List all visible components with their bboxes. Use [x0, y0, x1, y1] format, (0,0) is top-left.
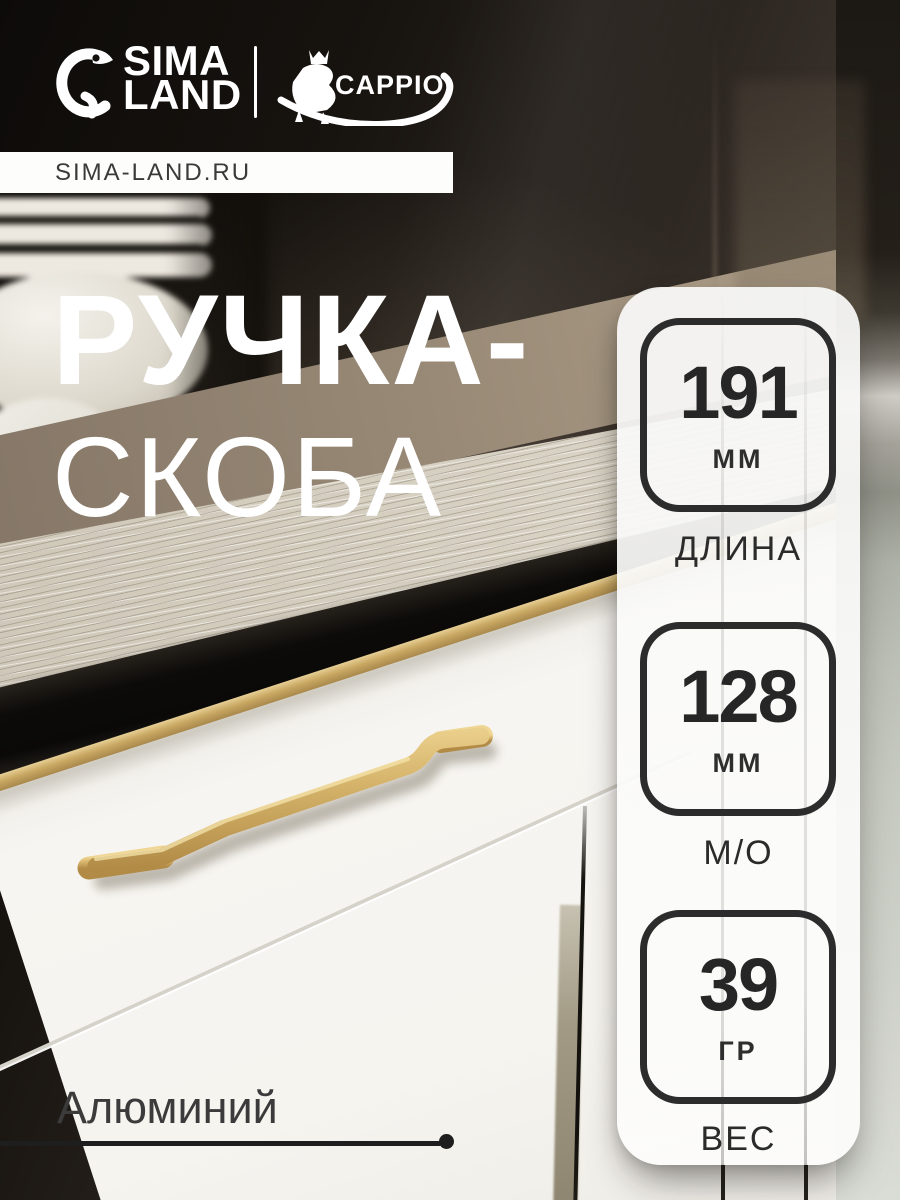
sima-land-logo: SIMA LAND — [123, 44, 242, 113]
spec-box-weight: 39 ГР — [640, 910, 836, 1104]
spec-unit-weight: ГР — [718, 1036, 757, 1067]
site-banner-text: SIMA-LAND.RU — [55, 159, 251, 187]
spec-unit-hole-spacing: ММ — [713, 748, 764, 779]
cappio-logo: CAPPIO — [269, 40, 469, 126]
brand-logos: SIMA LAND CAPPIO — [55, 40, 475, 126]
sima-land-dolphin-icon — [55, 44, 117, 122]
site-banner: SIMA-LAND.RU — [0, 152, 453, 193]
door-seam-line — [721, 1163, 725, 1200]
product-title-line2: СКОБА — [52, 421, 652, 534]
door-seam-line — [804, 1163, 808, 1200]
spec-value-hole-spacing: 128 — [679, 660, 796, 734]
spec-label-weight: ВЕС — [617, 1120, 860, 1159]
spec-label-length: ДЛИНА — [617, 530, 860, 569]
material-pointer-line — [0, 1141, 442, 1146]
crown-icon — [309, 50, 329, 64]
logo-divider — [254, 46, 257, 118]
cappio-logo-text: CAPPIO — [335, 70, 445, 101]
spec-value-length: 191 — [679, 356, 796, 430]
spec-label-hole-spacing: М/О — [617, 834, 860, 873]
spec-value-weight: 39 — [699, 948, 777, 1022]
material-label: Алюминий — [57, 1082, 278, 1134]
cabinet-seam — [713, 30, 717, 290]
cabinet-highlight — [735, 80, 865, 320]
spec-panel: 191 ММ ДЛИНА 128 ММ М/О 39 ГР ВЕС — [617, 287, 860, 1165]
gold-handle — [75, 705, 505, 900]
spec-box-hole-spacing: 128 ММ — [640, 622, 836, 816]
product-card: 191 ММ ДЛИНА 128 ММ М/О 39 ГР ВЕС SIMA L… — [0, 0, 900, 1200]
product-title: РУЧКА- СКОБА — [52, 276, 652, 534]
spec-box-length: 191 ММ — [640, 318, 836, 512]
spec-unit-length: ММ — [713, 444, 764, 475]
sima-land-logo-line2: LAND — [123, 78, 242, 112]
material-pointer-dot — [439, 1134, 454, 1149]
product-title-line1: РУЧКА- — [52, 276, 652, 407]
